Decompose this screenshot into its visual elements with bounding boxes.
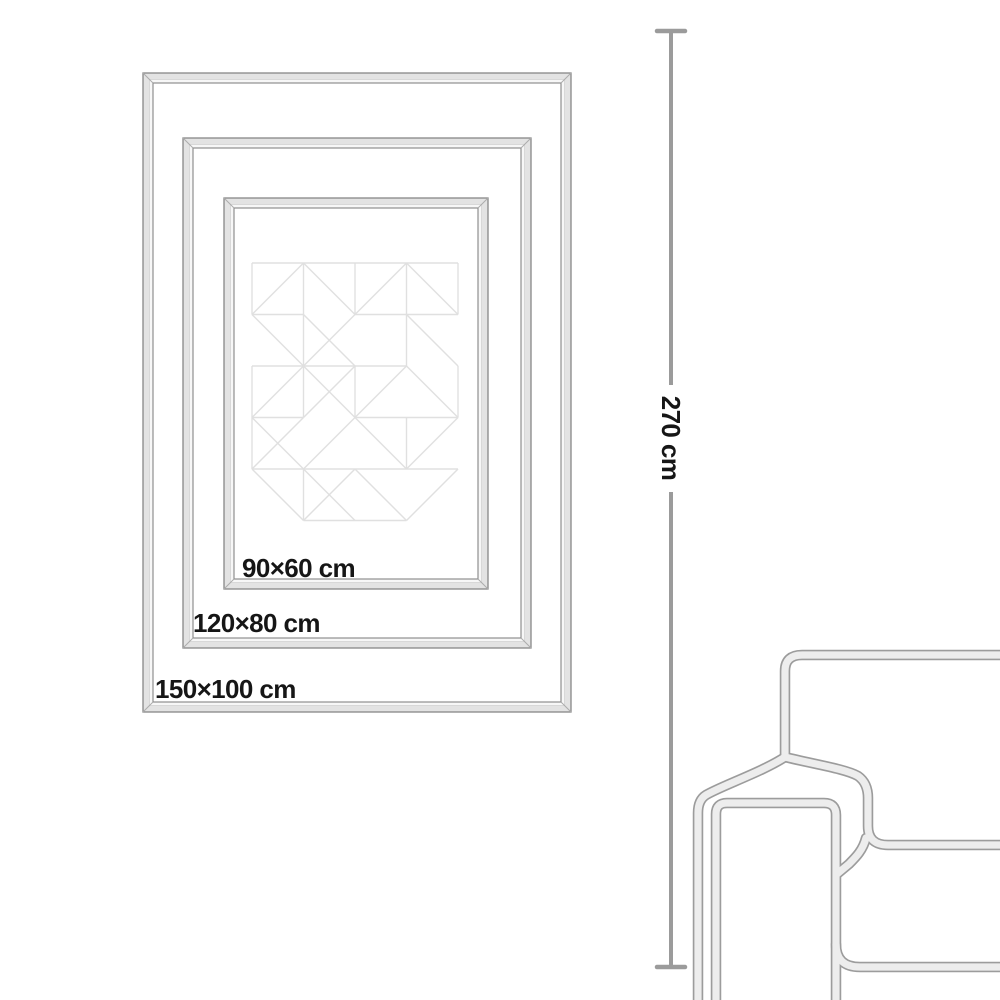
size-guide-canvas: 150×100 cm 120×80 cm 90×60 cm 270 cm [0,0,1000,1000]
sofa-illustration [698,655,1000,1000]
frame-size-label-90x60: 90×60 cm [242,553,355,583]
sofa-path-arm-front [716,803,836,1000]
poster-size-guide-diagram: 150×100 cm 120×80 cm 90×60 cm 270 cm [0,0,1000,1000]
frame-size-label-150x100: 150×100 cm [155,674,296,704]
sofa-path-backrest [785,655,1000,757]
frame-outline-90x60 [224,198,488,589]
sofa-path-seat-base [836,944,1000,967]
frame-size-label-120x80: 120×80 cm [193,608,320,638]
sofa-path-arm-front [716,803,836,1000]
sofa-path-backrest [785,655,1000,757]
wall-height-dimension-line: 270 cm [656,31,686,967]
wall-height-label: 270 cm [656,396,686,481]
